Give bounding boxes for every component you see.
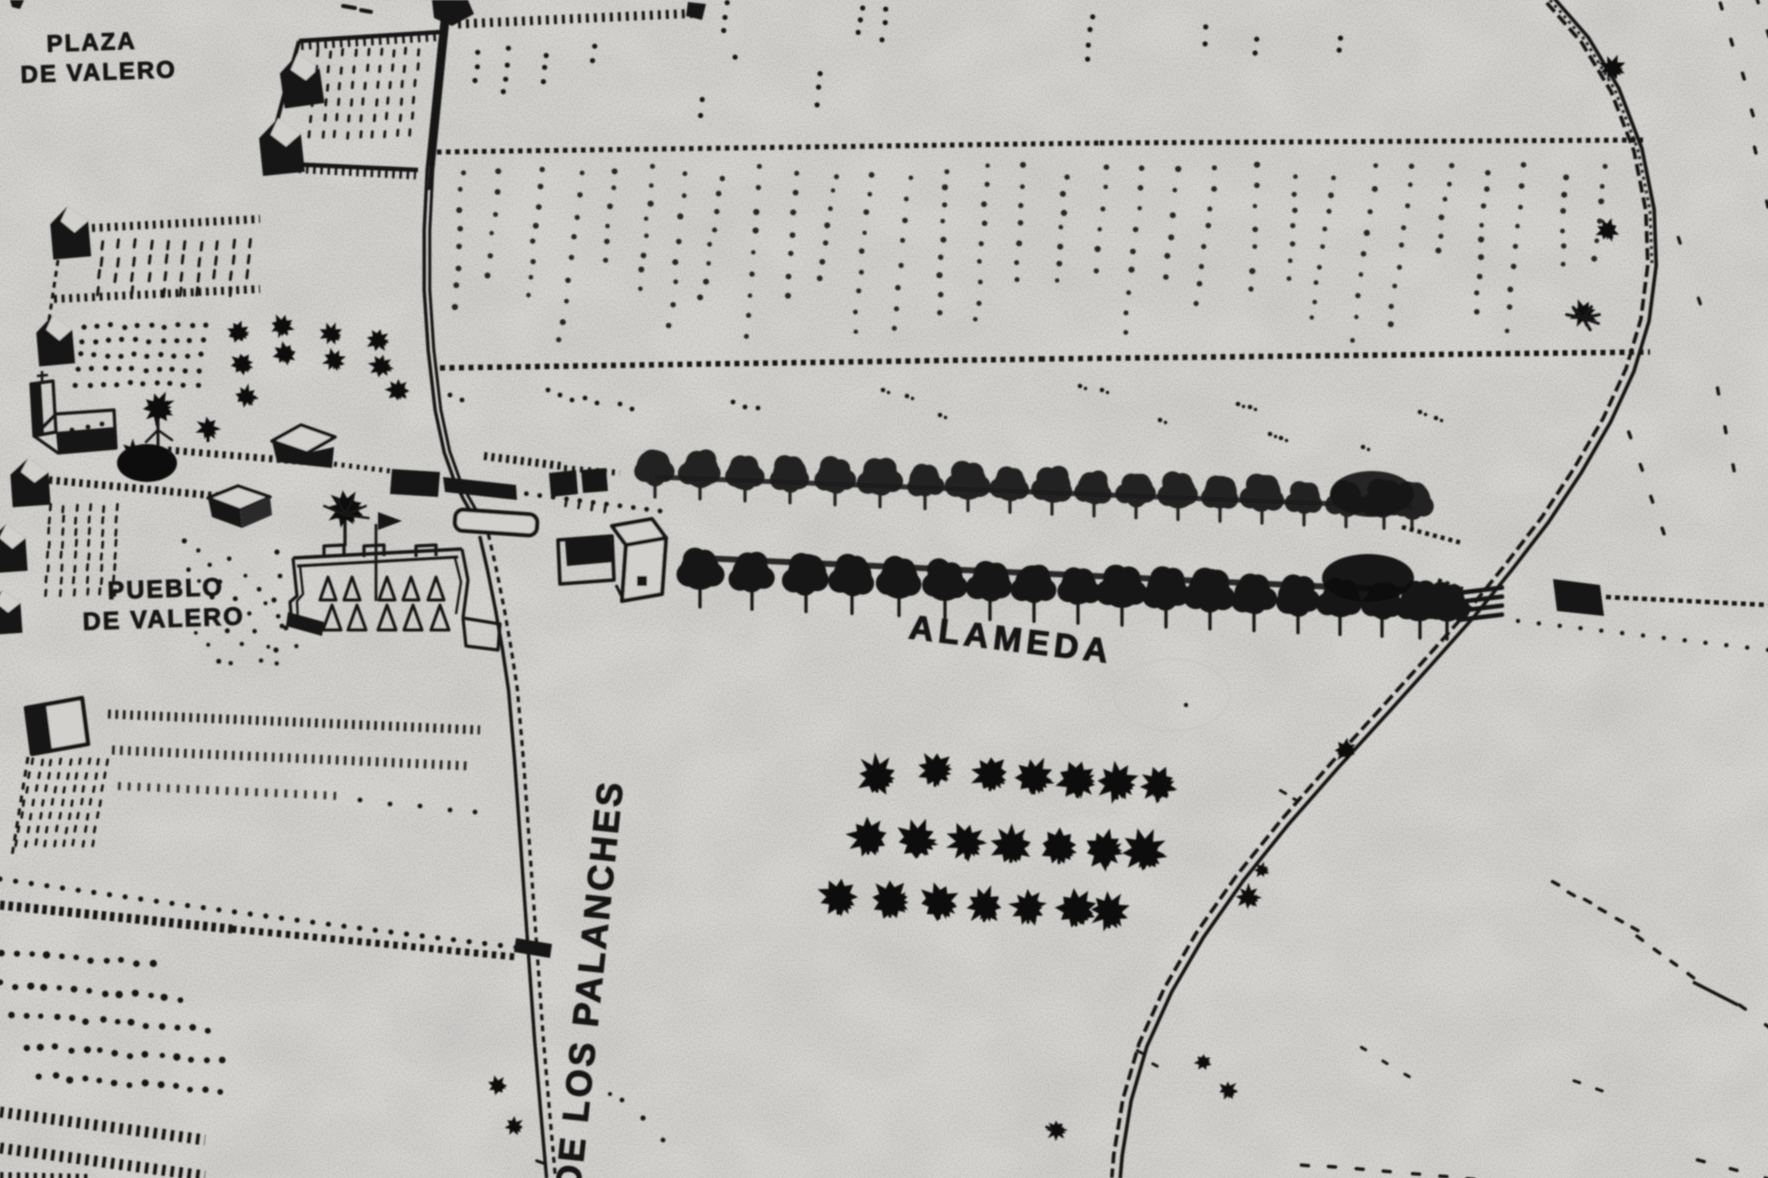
svg-text:DE VALERO: DE VALERO <box>82 602 245 636</box>
svg-text:DE VALERO: DE VALERO <box>20 56 177 88</box>
svg-text:PUEBLO: PUEBLO <box>107 573 224 605</box>
svg-text:PLAZA: PLAZA <box>46 28 137 58</box>
